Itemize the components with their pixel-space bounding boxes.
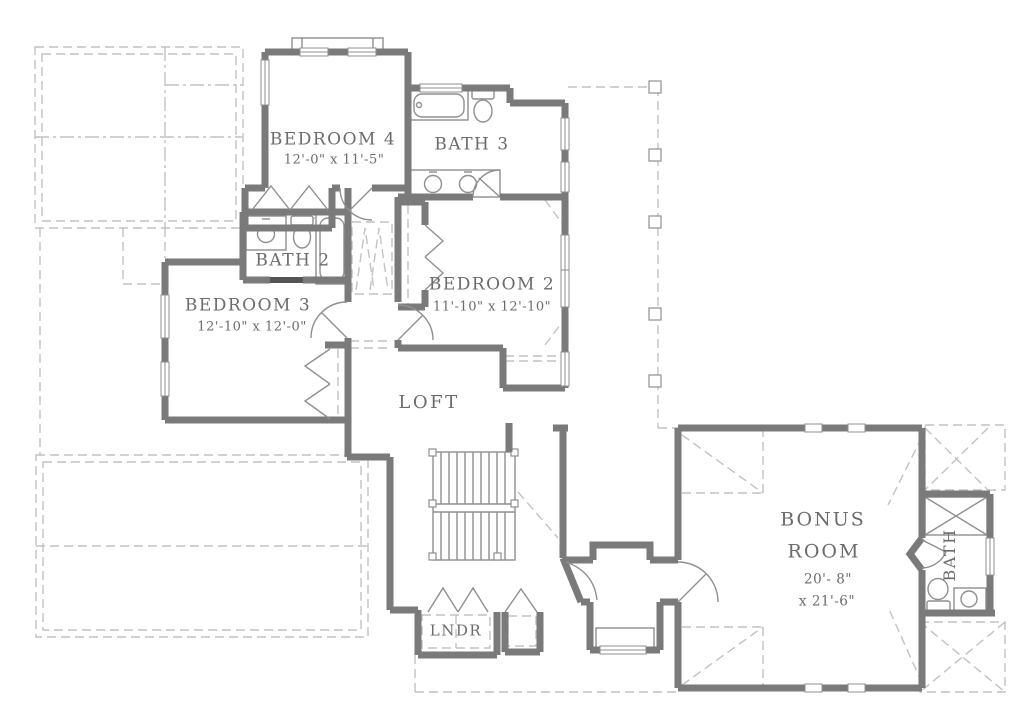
porch-post <box>649 216 661 228</box>
floor-plan: BEDROOM 4 12'-0" x 11'-5" BATH 3 BATH 2 … <box>0 0 1024 719</box>
bifold-hall-closet <box>505 589 537 612</box>
laundry-label: LNDR <box>430 624 482 639</box>
attic-access-icon <box>352 222 392 294</box>
vanity-bonus-bath-icon <box>954 588 986 613</box>
bedroom2-label: BEDROOM 2 <box>429 277 555 294</box>
bathtub-bath3-icon <box>410 90 468 120</box>
pocket-door <box>270 277 303 283</box>
bonus-bath-label: BATH <box>942 528 958 581</box>
porch-post <box>649 308 661 320</box>
bonus-room-dims-line1: 20'- 8" <box>804 573 852 587</box>
bedroom3-dims: 12'-10" x 12'-0" <box>197 321 306 334</box>
toilet-bath2-icon <box>291 216 313 248</box>
dormer-window-seat <box>596 628 654 648</box>
bonus-room-dims-line2: x 21'-6" <box>799 595 855 609</box>
bifold-laundry <box>428 588 488 612</box>
bedroom4-dims: 12'-0" x 11'-5" <box>284 154 385 167</box>
toilet-bonus-bath-icon <box>927 579 950 612</box>
loft-label: LOFT <box>398 394 459 412</box>
ceiling-slope-dashed <box>250 200 1005 692</box>
bath2-label: BATH 2 <box>255 253 330 270</box>
stairs <box>429 449 518 560</box>
bedroom3-label: BEDROOM 3 <box>185 298 311 315</box>
porch-post <box>649 375 661 387</box>
porch-post <box>649 149 661 161</box>
porch-post <box>649 81 661 93</box>
porch-outline-dashed <box>568 81 678 428</box>
toilet-bath3-icon <box>472 90 494 122</box>
bifold-closet-bedroom3 <box>305 349 330 419</box>
floor-plan-drawing <box>0 0 1024 719</box>
vanity-bath2-icon <box>246 216 286 250</box>
bedroom4-label: BEDROOM 4 <box>270 132 396 149</box>
bedroom2-dims: 11'-10" x 12'-10" <box>433 301 551 314</box>
bonus-room-label-line2: ROOM <box>788 543 861 562</box>
bonus-room-label-line1: BONUS <box>780 511 866 530</box>
bath3-label: BATH 3 <box>434 137 509 154</box>
